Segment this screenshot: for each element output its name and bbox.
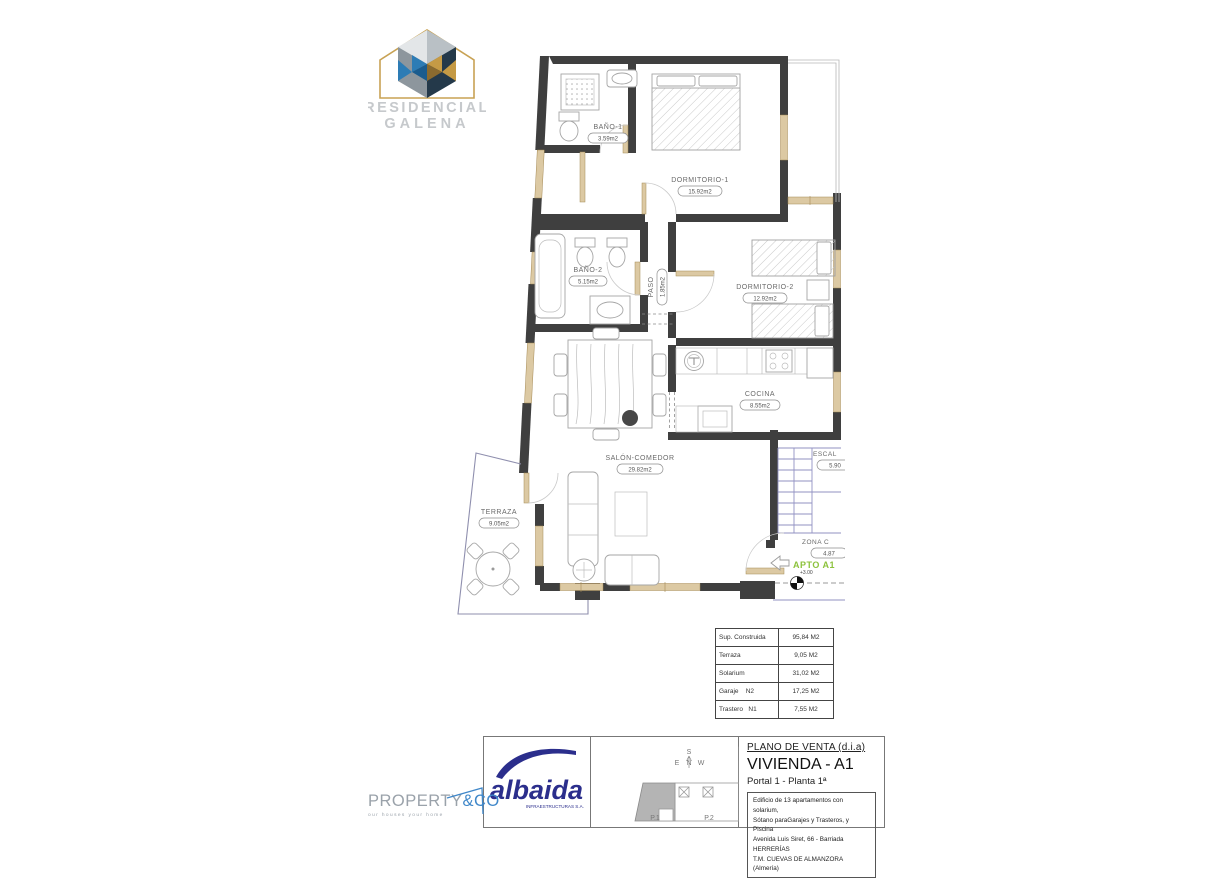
property-co-logo: PROPERTY&CO our houses your home: [368, 792, 498, 818]
room-label-terraza: TERRAZA 9.05m2: [479, 509, 519, 528]
area-value: 95,84 M2: [779, 629, 834, 647]
apartment-label: APTO A1: [793, 560, 835, 570]
svg-text:ZONA C: ZONA C: [802, 539, 829, 546]
document-type: PLANO DE VENTA (d.i.a): [747, 742, 876, 753]
balcony-outline: [788, 60, 839, 202]
area-label: Sup. Construida: [716, 629, 779, 647]
table-row: Trastero N1 7,55 M2: [716, 701, 834, 719]
svg-text:BAÑO-1: BAÑO-1: [593, 122, 622, 131]
svg-text:BAÑO-2: BAÑO-2: [573, 265, 602, 274]
area-value: 31,02 M2: [779, 665, 834, 683]
compass-icon: S E N W: [675, 749, 705, 768]
column: [622, 410, 638, 426]
svg-text:3.59m2: 3.59m2: [598, 137, 619, 143]
table-row: Terraza 9,05 M2: [716, 647, 834, 665]
description-line: Edificio de 13 apartamentos con solarium…: [753, 796, 870, 816]
area-value: 17,25 M2: [779, 683, 834, 701]
room-label-cocina: COCINA 8.55m2: [740, 391, 780, 410]
room-label-bano1: BAÑO-1 3.59m2: [588, 122, 628, 143]
svg-text:P.1: P.1: [650, 815, 660, 822]
description-line: Sótano paraGarajes y Trasteros, y Piscin…: [753, 816, 870, 836]
level-marker-icon: [791, 577, 804, 590]
area-value: 7,55 M2: [779, 701, 834, 719]
room-label-bano2: BAÑO-2 5.15m2: [569, 265, 607, 286]
svg-text:DORMITORIO-2: DORMITORIO-2: [736, 284, 794, 291]
albaida-subtitle: INFRAESTRUCTURAS S.A.: [526, 804, 584, 809]
page-title: VIVIENDA - A1: [747, 756, 876, 774]
svg-text:1.85m2: 1.85m2: [661, 276, 667, 297]
svg-text:12.92m2: 12.92m2: [753, 297, 777, 303]
table-row: Sup. Construida 95,84 M2: [716, 629, 834, 647]
svg-text:W: W: [698, 760, 705, 767]
property-roof-icon: [443, 784, 487, 816]
svg-text:PASO: PASO: [648, 276, 655, 297]
room-label-escalera: ESCAL 5.90: [813, 451, 845, 470]
site-plan-cell: S E N W: [591, 737, 739, 827]
level-mark-label: +3.00: [800, 570, 813, 576]
svg-text:4.87: 4.87: [823, 552, 835, 558]
furniture: [466, 70, 835, 596]
svg-text:9.05m2: 9.05m2: [489, 522, 510, 528]
room-label-dormitorio2: DORMITORIO-2 12.92m2: [736, 284, 794, 303]
room-label-salon: SALÓN-COMEDOR 29.82m2: [605, 453, 674, 474]
albaida-wordmark: albaida: [490, 775, 583, 805]
svg-text:TERRAZA: TERRAZA: [481, 509, 517, 516]
svg-text:E: E: [675, 760, 680, 767]
plan-sheet: RESIDENCIAL GALENA: [0, 0, 1221, 838]
svg-text:5.90: 5.90: [829, 464, 841, 470]
svg-text:P.2: P.2: [704, 815, 714, 822]
floor-plan: BAÑO-1 3.59m2 DORMITORIO-1 15.92m2 BAÑO-…: [455, 52, 845, 630]
room-label-zona-comun: ZONA C 4.87: [802, 539, 845, 558]
svg-text:COCINA: COCINA: [745, 391, 775, 398]
svg-text:29.82m2: 29.82m2: [628, 468, 652, 474]
svg-text:SALÓN-COMEDOR: SALÓN-COMEDOR: [605, 453, 674, 462]
svg-text:S: S: [687, 749, 692, 756]
area-label: Terraza: [716, 647, 779, 665]
document-subtitle: Portal 1 - Planta 1ª: [747, 776, 876, 787]
room-label-paso: PASO 1.85m2: [648, 269, 667, 305]
area-label: Trastero N1: [716, 701, 779, 719]
room-label-dormitorio1: DORMITORIO-1 15.92m2: [671, 177, 729, 196]
svg-text:8.55m2: 8.55m2: [750, 404, 771, 410]
albaida-logo: albaida INFRAESTRUCTURAS S.A.: [484, 737, 591, 827]
building-description: Edificio de 13 apartamentos con solarium…: [747, 792, 876, 878]
table-row: Garaje N2 17,25 M2: [716, 683, 834, 701]
area-value: 9,05 M2: [779, 647, 834, 665]
stairs: [773, 448, 845, 600]
doors: [524, 125, 784, 574]
document-info: PLANO DE VENTA (d.i.a) VIVIENDA - A1 Por…: [739, 737, 884, 827]
area-label: Solarium: [716, 665, 779, 683]
description-line: T.M. CUEVAS DE ALMANZORA (Almería): [753, 855, 870, 875]
table-row: Solarium 31,02 M2: [716, 665, 834, 683]
title-block: albaida INFRAESTRUCTURAS S.A. S E N W: [483, 736, 885, 828]
area-label: Garaje N2: [716, 683, 779, 701]
svg-text:15.92m2: 15.92m2: [688, 190, 712, 196]
svg-text:ESCAL: ESCAL: [813, 451, 837, 458]
svg-text:5.15m2: 5.15m2: [578, 280, 599, 286]
svg-text:DORMITORIO-1: DORMITORIO-1: [671, 177, 729, 184]
areas-summary-table: Sup. Construida 95,84 M2 Terraza 9,05 M2…: [715, 628, 834, 719]
